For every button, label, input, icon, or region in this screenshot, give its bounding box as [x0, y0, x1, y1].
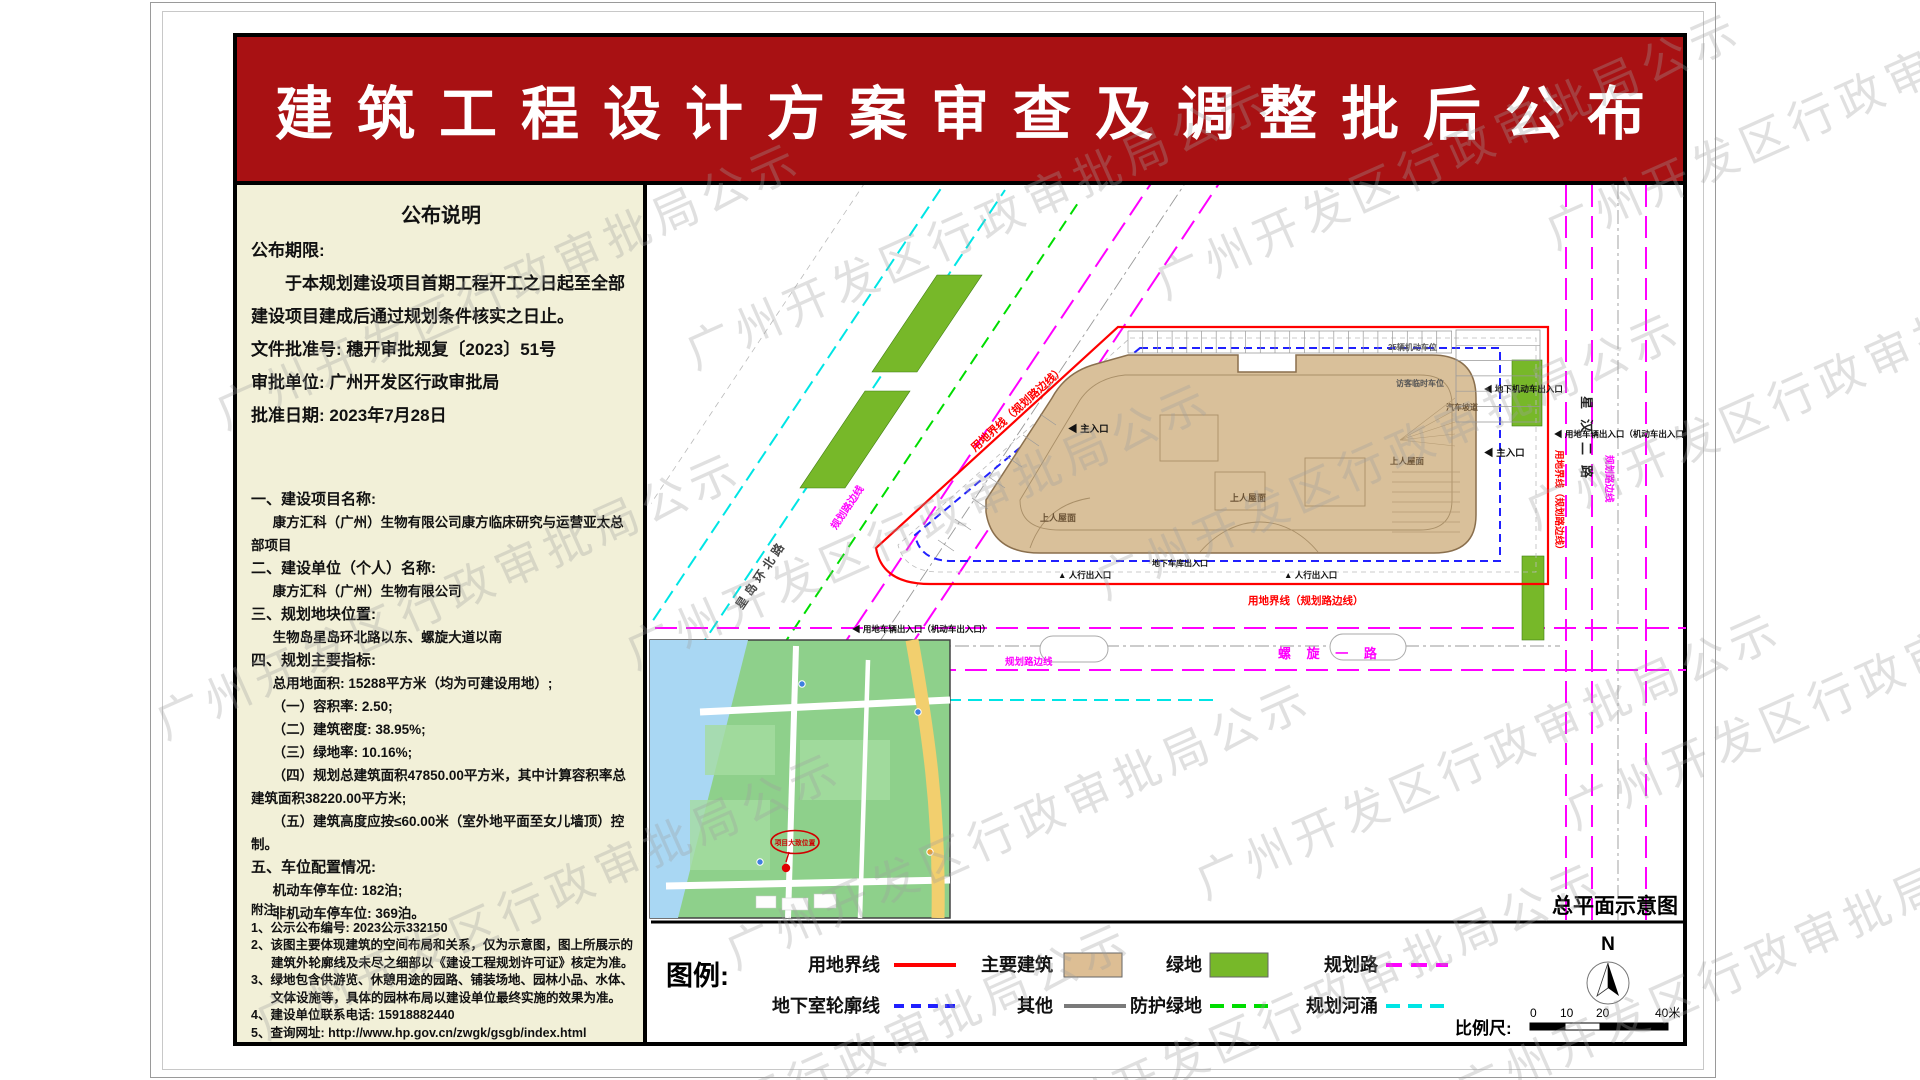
- section-line: （二）建筑密度: 38.95%;: [251, 718, 631, 741]
- section-line: （一）容积率: 2.50;: [251, 695, 631, 718]
- section-heading: 二、建设单位（个人）名称:: [251, 557, 631, 580]
- note-item: 3、绿地包含供游览、休憩用途的园路、铺装场地、园林小品、水体、文体设施等，具体的…: [251, 972, 635, 1007]
- section-line: 生物岛星岛环北路以东、螺旋大道以南: [251, 626, 631, 649]
- note-item: 2、该图主要体现建筑的空间布局和关系，仅为示意图，图上所展示的建筑外轮廓线及未尽…: [251, 937, 635, 972]
- section-line: （三）绿地率: 10.16%;: [251, 741, 631, 764]
- title-banner: 建筑工程设计方案审查及调整批后公布: [237, 37, 1683, 185]
- period-label: 公布期限:: [251, 234, 631, 267]
- page-title: 建筑工程设计方案审查及调整批后公布: [251, 67, 1669, 151]
- approval-unit: 审批单位: 广州开发区行政审批局: [251, 366, 631, 399]
- period-body: 于本规划建设项目首期工程开工之日起至全部建设项目建成后通过规划条件核实之日止。: [251, 267, 631, 333]
- section-line: 康方汇科（广州）生物有限公司: [251, 580, 631, 603]
- site-plan-area: [647, 185, 1683, 1042]
- notes-list: 1、公示公布编号: 2023公示3321502、该图主要体现建筑的空间布局和关系…: [251, 920, 635, 1043]
- approval-date: 批准日期: 2023年7月28日: [251, 399, 631, 432]
- note-item: 1、公示公布编号: 2023公示332150: [251, 920, 635, 938]
- document-body: 公布说明 公布期限: 于本规划建设项目首期工程开工之日起至全部建设项目建成后通过…: [237, 185, 1683, 1042]
- notice-document: 建筑工程设计方案审查及调整批后公布 公布说明 公布期限: 于本规划建设项目首期工…: [233, 33, 1687, 1046]
- section-heading: 三、规划地块位置:: [251, 603, 631, 626]
- notes-title: 附注:: [251, 902, 635, 920]
- section-heading: 一、建设项目名称:: [251, 488, 631, 511]
- section-line: 总用地面积: 15288平方米（均为可建设用地）;: [251, 672, 631, 695]
- notice-sections: 一、建设项目名称:康方汇科（广州）生物有限公司康方临床研究与运营亚太总部项目二、…: [251, 488, 631, 925]
- section-heading: 五、车位配置情况:: [251, 856, 631, 879]
- doc-number: 文件批准号: 穗开审批规复〔2023〕51号: [251, 333, 631, 366]
- notes-block: 附注: 1、公示公布编号: 2023公示3321502、该图主要体现建筑的空间布…: [251, 902, 635, 1042]
- notice-subtitle: 公布说明: [251, 199, 631, 228]
- notice-panel: 公布说明 公布期限: 于本规划建设项目首期工程开工之日起至全部建设项目建成后通过…: [237, 185, 647, 1042]
- section-line: （四）规划总建筑面积47850.00平方米，其中计算容积率总建筑面积38220.…: [251, 764, 631, 810]
- note-item: 4、建设单位联系电话: 15918882440: [251, 1007, 635, 1025]
- section-line: （五）建筑高度应按≤60.00米（室外地平面至女儿墙顶）控制。: [251, 810, 631, 856]
- section-line: 康方汇科（广州）生物有限公司康方临床研究与运营亚太总部项目: [251, 511, 631, 557]
- section-line: 机动车停车位: 182泊;: [251, 879, 631, 902]
- notice-page: 建筑工程设计方案审查及调整批后公布 公布说明 公布期限: 于本规划建设项目首期工…: [0, 0, 1920, 1080]
- section-heading: 四、规划主要指标:: [251, 649, 631, 672]
- note-item: 5、查询网址: http://www.hp.gov.cn/zwgk/gsgb/i…: [251, 1025, 635, 1043]
